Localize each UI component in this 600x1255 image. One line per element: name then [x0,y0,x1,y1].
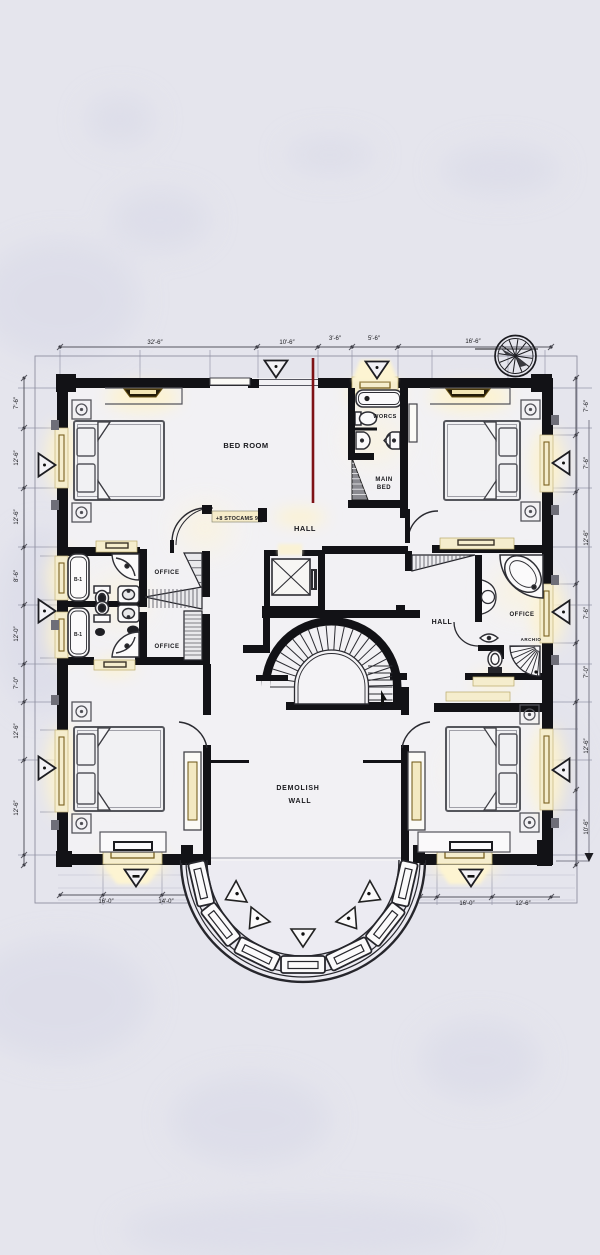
svg-text:MAIN: MAIN [375,477,392,483]
svg-text:16′-0″: 16′-0″ [459,901,475,907]
svg-text:7′-6″: 7′-6″ [14,396,20,409]
svg-text:HALL: HALL [294,524,316,533]
svg-text:8′-6″: 8′-6″ [14,569,20,582]
svg-text:12′-6″: 12′-6″ [14,799,20,815]
svg-text:32′-6″: 32′-6″ [147,340,163,346]
svg-text:12′-6″: 12′-6″ [14,722,20,738]
svg-text:WORCS: WORCS [373,414,397,420]
svg-text:12′-0″: 12′-0″ [14,625,20,641]
svg-text:5′-6″: 5′-6″ [368,336,381,342]
svg-text:12′-6″: 12′-6″ [14,449,20,465]
svg-text:B-1: B-1 [74,632,82,638]
svg-text:+8 STOCAMS 9: +8 STOCAMS 9 [216,516,258,522]
svg-text:16′-6″: 16′-6″ [465,339,481,345]
svg-text:12′-6″: 12′-6″ [515,901,531,907]
svg-text:14′-0″: 14′-0″ [158,899,174,905]
svg-text:12′-6″: 12′-6″ [14,508,20,524]
svg-text:7′-6″: 7′-6″ [584,399,590,412]
svg-text:B-1: B-1 [74,577,82,583]
svg-text:OFFICE: OFFICE [510,612,535,618]
svg-text:DEMOLISH: DEMOLISH [276,785,319,792]
svg-text:ARCHIO: ARCHIO [521,637,542,642]
svg-text:BED ROOM: BED ROOM [223,441,268,450]
svg-text:HALL: HALL [432,619,453,626]
svg-text:OFFICE: OFFICE [155,570,180,576]
svg-text:3′-6″: 3′-6″ [329,336,342,342]
svg-text:OFFICE: OFFICE [155,644,180,650]
svg-text:16′-0″: 16′-0″ [98,899,114,905]
svg-text:BED: BED [377,485,391,491]
svg-text:10′-6″: 10′-6″ [279,340,295,346]
svg-text:7′-0″: 7′-0″ [14,676,20,689]
svg-text:WALL: WALL [288,798,311,805]
